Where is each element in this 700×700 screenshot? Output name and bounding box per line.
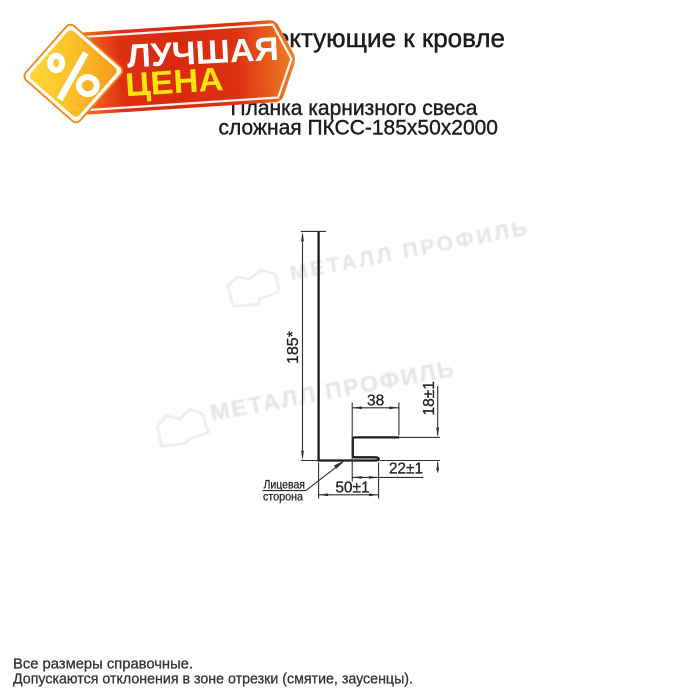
svg-text:38: 38 (367, 393, 384, 410)
svg-text:сторона: сторона (263, 490, 303, 504)
svg-text:50±1: 50±1 (335, 479, 369, 496)
svg-text:22±1: 22±1 (389, 461, 423, 478)
svg-text:ЦЕНА: ЦЕНА (124, 60, 224, 103)
svg-text:сложная ПКСС-185х50х2000: сложная ПКСС-185х50х2000 (219, 117, 499, 140)
svg-text:Допускаются отклонения в зоне: Допускаются отклонения в зоне отрезки (с… (13, 670, 413, 687)
svg-text:185*: 185* (285, 331, 302, 364)
svg-text:18±1: 18±1 (421, 381, 438, 415)
